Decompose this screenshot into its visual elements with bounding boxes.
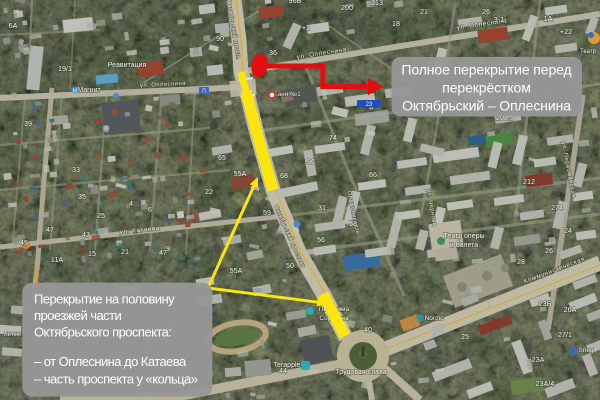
svg-text:Перекрытие на половину: Перекрытие на половину <box>34 292 175 307</box>
svg-text:– часть проспекта у «кольца»: – часть проспекта у «кольца» <box>34 371 198 386</box>
svg-text:Октябрьского проспекта:: Октябрьского проспекта: <box>34 324 171 339</box>
svg-text:проезжей части: проезжей части <box>34 308 122 323</box>
svg-text:перекрёстком: перекрёстком <box>442 80 531 96</box>
svg-text:Полное перекрытие перед: Полное перекрытие перед <box>401 62 571 78</box>
svg-text:Октябрьский – Оплеснина: Октябрьский – Оплеснина <box>402 98 571 114</box>
svg-text:– от Оплеснина до Катаева: – от Оплеснина до Катаева <box>34 354 187 369</box>
